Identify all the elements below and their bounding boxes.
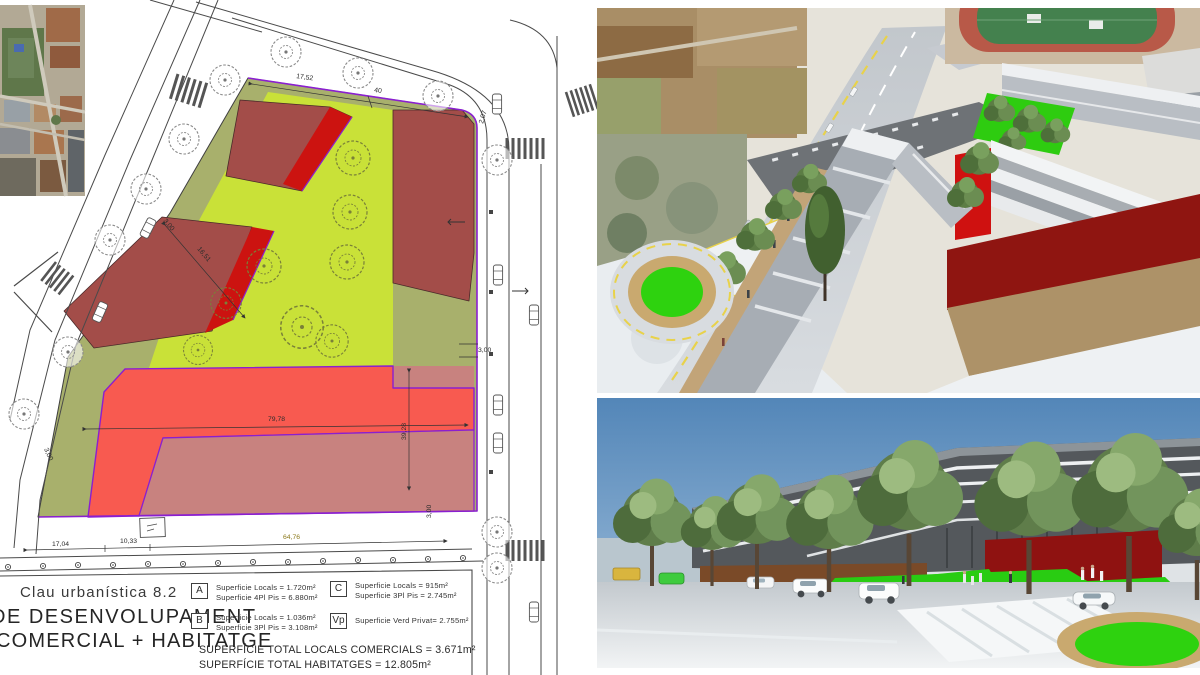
legend-Vp-line1: Superficie Verd Privat= 2.755m² — [355, 616, 469, 626]
zone-mauve-upper — [393, 366, 474, 388]
parcel-zones — [38, 78, 477, 517]
legend-entry-C: C Superficie Locals = 915m² Superficie 3… — [330, 581, 457, 601]
totals-line2: SUPERFÍCIE TOTAL HABITATGES = 12.805m² — [199, 658, 476, 673]
site-plan-drawing: 17,52 40 2,07 3,00 16,51 79,78 39,28 3,0… — [0, 0, 597, 675]
dim-label: 40 — [374, 87, 383, 95]
roundabout — [610, 240, 734, 344]
legend-C-line1: Superficie Locals = 915m² — [355, 581, 457, 591]
aerial-inset-photo — [0, 5, 85, 196]
zone-building-C — [393, 110, 474, 301]
zone-mauve-main — [139, 430, 474, 516]
totals-block: SUPERFÍCIE TOTAL LOCALS COMERCIALS = 3.6… — [199, 643, 476, 673]
legend-key-C: C — [330, 581, 347, 597]
dim-label: 2,07 — [478, 110, 488, 125]
dim-label: 3,00 — [478, 347, 491, 354]
legend-key-Vp: Vp — [330, 613, 347, 629]
legend-A-line1: Superficie Locals = 1.720m² — [216, 583, 318, 593]
legend-entry-B: B Superficie Locals = 1.036m² Superficie… — [191, 613, 318, 633]
dim-label: 17,52 — [296, 73, 314, 82]
legend-key-B: B — [191, 613, 208, 629]
legend-B-line2: Superficie 3Pl Pis = 3.108m² — [216, 623, 318, 633]
render-street-level-view — [597, 398, 1200, 668]
urban-planning-board: 17,52 40 2,07 3,00 16,51 79,78 39,28 3,0… — [0, 0, 1200, 675]
legend-C-line2: Superficie 3Pl Pis = 2.745m² — [355, 591, 457, 601]
dim-label: 64,76 — [283, 534, 300, 541]
legend-A-line2: Superficie 4Pl Pis = 6.880m² — [216, 593, 318, 603]
dim-label: 3,00 — [426, 505, 433, 518]
legend-entry-Vp: Vp Superficie Verd Privat= 2.755m² — [330, 613, 469, 629]
legend-key-A: A — [191, 583, 208, 599]
legend-B-line1: Superficie Locals = 1.036m² — [216, 613, 318, 623]
dim-label: 17,04 — [52, 541, 69, 548]
totals-line1: SUPERFÍCIE TOTAL LOCALS COMERCIALS = 3.6… — [199, 643, 476, 658]
white-car — [747, 577, 774, 588]
plan-code-title: Clau urbanística 8.2 — [20, 584, 177, 601]
render-aerial-3d-view — [597, 8, 1200, 393]
legend-entry-A: A Superficie Locals = 1.720m² Superficie… — [191, 583, 318, 603]
dim-label: 39,28 — [401, 423, 408, 440]
dim-label: 79,78 — [268, 416, 285, 423]
dim-label: 10,33 — [120, 538, 137, 545]
